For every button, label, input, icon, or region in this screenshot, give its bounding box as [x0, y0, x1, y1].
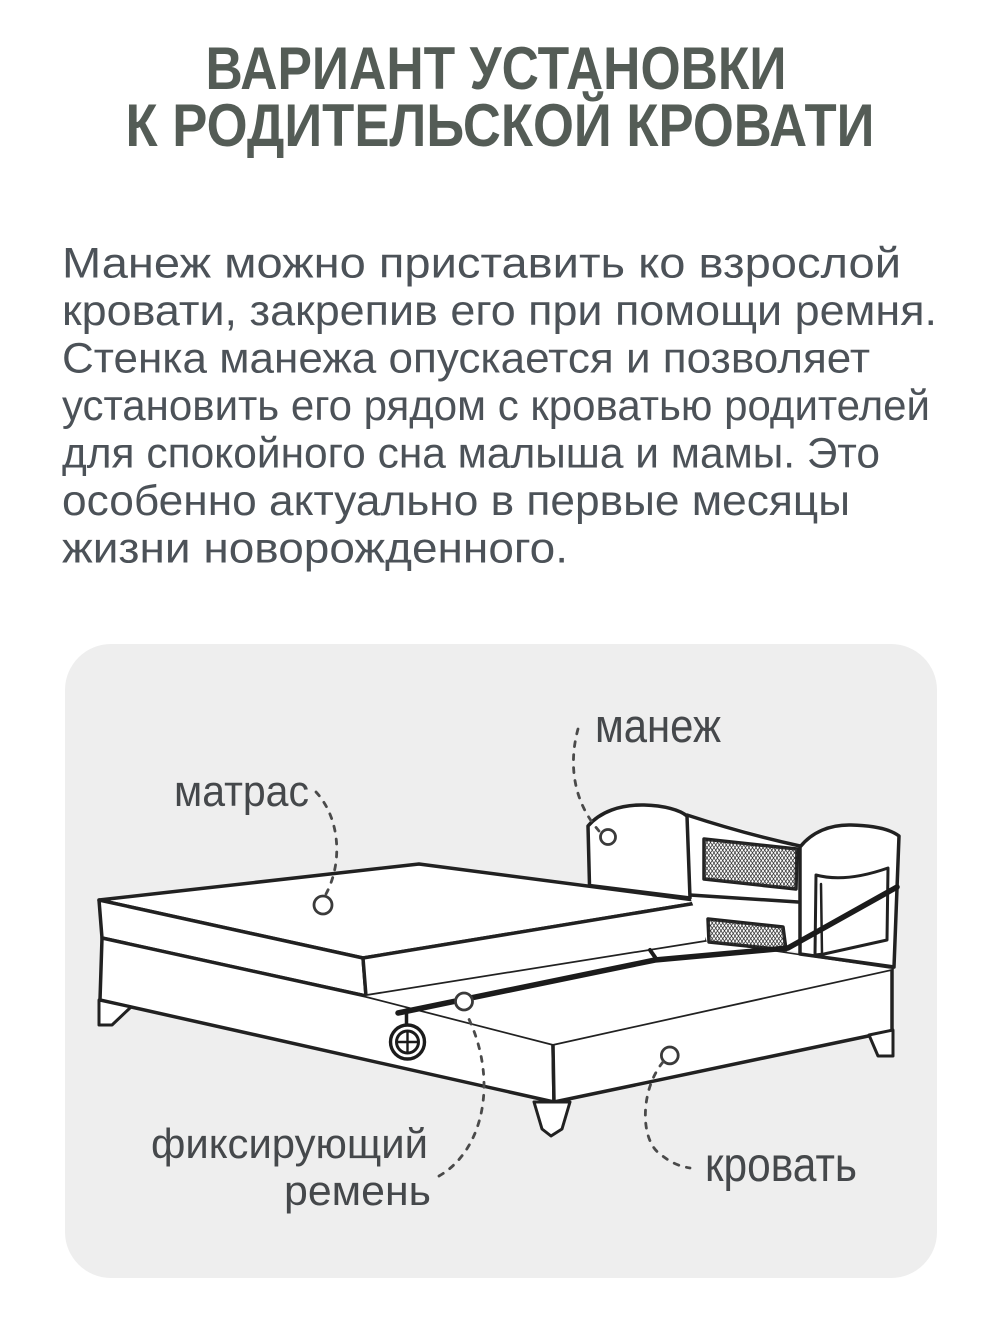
svg-text:ремень: ремень	[284, 1167, 431, 1214]
svg-text:Стенка манежа опускается и поз: Стенка манежа опускается и позволяет	[62, 335, 870, 383]
svg-text:особенно актуально в первые ме: особенно актуально в первые месяцы	[62, 477, 850, 525]
svg-text:жизни новорожденного.: жизни новорожденного.	[62, 525, 568, 573]
svg-text:Манеж можно приставить ко взро: Манеж можно приставить ко взрослой	[62, 240, 901, 288]
svg-text:манеж: манеж	[595, 699, 721, 752]
svg-text:для спокойного сна малыша и ма: для спокойного сна малыша и мамы. Это	[62, 430, 880, 478]
svg-text:кровать: кровать	[705, 1139, 857, 1192]
svg-text:фиксирующий: фиксирующий	[151, 1120, 428, 1167]
svg-text:кровати, закрепив его при помо: кровати, закрепив его при помощи ремня.	[62, 287, 937, 335]
svg-text:К РОДИТЕЛЬСКОЙ КРОВАТИ: К РОДИТЕЛЬСКОЙ КРОВАТИ	[126, 92, 875, 159]
svg-text:установить его рядом с кровать: установить его рядом с кроватью родителе…	[62, 382, 930, 430]
svg-text:матрас: матрас	[174, 767, 309, 816]
